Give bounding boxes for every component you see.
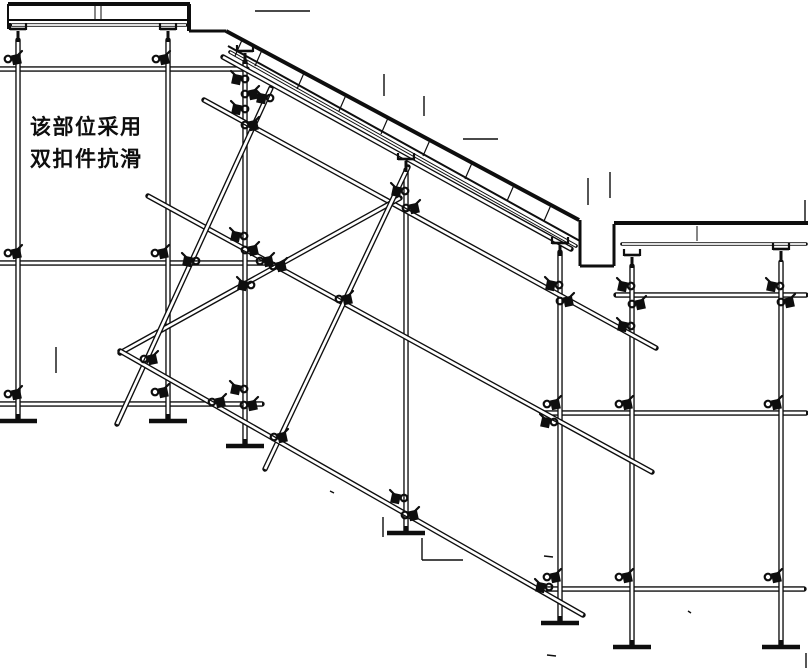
hatch-tick [544, 205, 551, 221]
base-plate-icon [149, 414, 187, 421]
base-plate-icon [0, 414, 37, 421]
coupler-icon [616, 396, 633, 410]
coupler-icon [5, 51, 22, 65]
artifact-mark [547, 655, 556, 656]
coupler-icon [544, 569, 561, 583]
coupler-icon [616, 569, 633, 583]
coupler-icon [765, 569, 782, 583]
artifact-mark [688, 611, 691, 613]
coupler-icon [544, 396, 561, 410]
annotation-line-1: 该部位采用 [30, 112, 143, 144]
artifact-mark [544, 556, 553, 557]
base-plate-icon [387, 526, 425, 533]
base-plate-icons [0, 414, 800, 647]
base-plate-icon [226, 439, 264, 446]
coupler-icon [5, 245, 22, 259]
blueprint-canvas: 该部位采用 双扣件抗滑 [0, 0, 808, 668]
hatch-tick [507, 185, 514, 201]
base-plate-icon [762, 640, 800, 647]
coupler-icon [5, 386, 22, 400]
scaffold-diagram [0, 0, 808, 668]
annotation-line-2: 双扣件抗滑 [30, 144, 143, 176]
coupler-icon [153, 51, 170, 65]
coupler-icon [535, 579, 552, 593]
hatch-tick [465, 163, 472, 179]
base-plate-icon [613, 640, 651, 647]
forkhead-icon [624, 249, 640, 268]
coupler-icon [152, 245, 169, 259]
artifact-mark [330, 491, 334, 493]
hatch-tick [423, 140, 430, 156]
annotation-label: 该部位采用 双扣件抗滑 [30, 112, 143, 176]
forkhead-icon [773, 243, 789, 262]
forkhead-icon [237, 45, 253, 64]
coupler-icon [765, 396, 782, 410]
base-plate-icon [541, 616, 579, 623]
coupler-icon [152, 384, 169, 398]
